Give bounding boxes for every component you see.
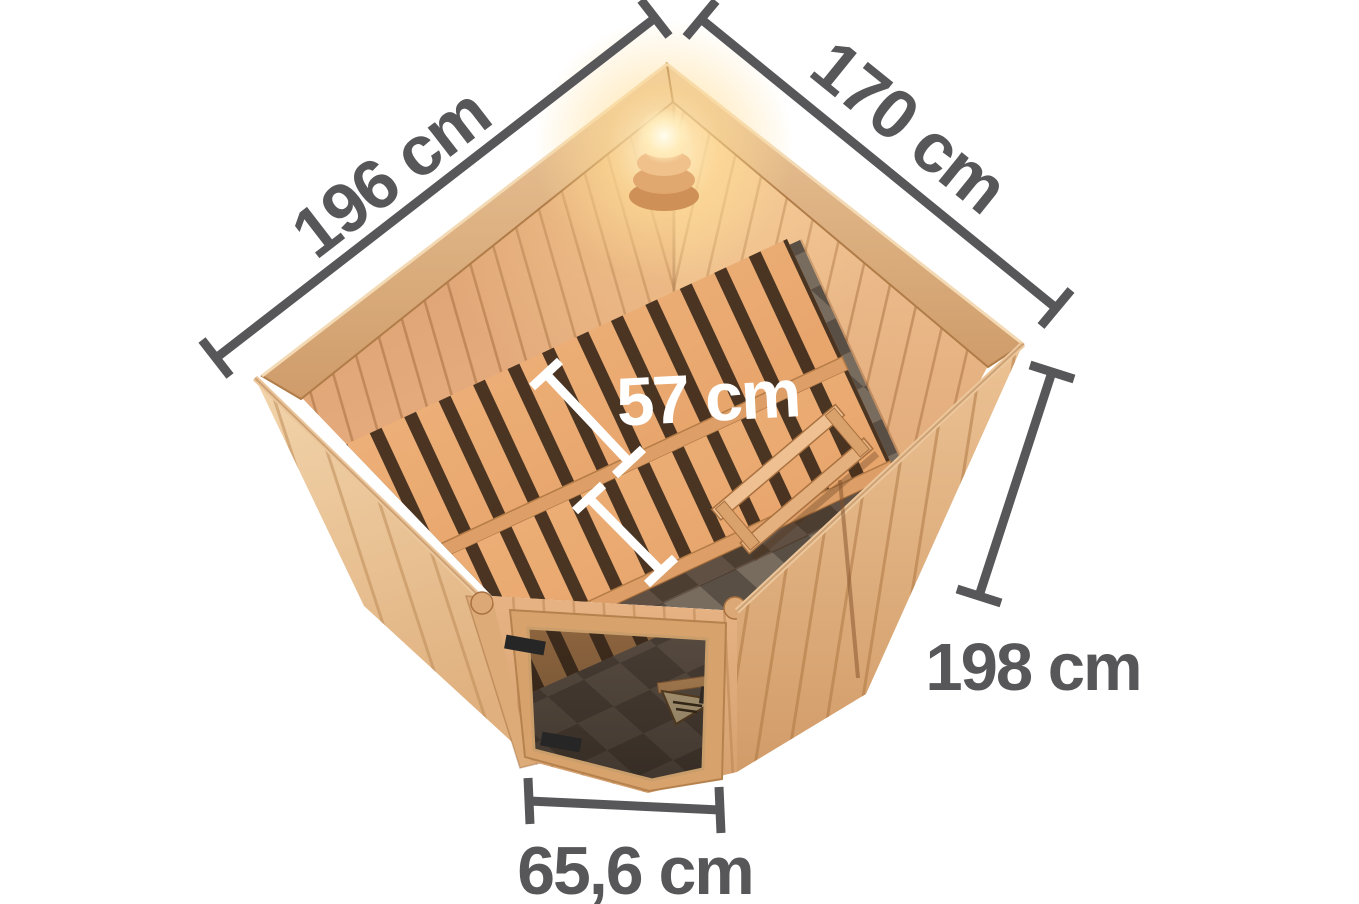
- dimension-label-bench-depth: 57 cm: [615, 355, 802, 440]
- sauna-door: [492, 596, 746, 800]
- dimension-door-width: 65,6 cm: [517, 778, 753, 904]
- dimension-label-door-width: 65,6 cm: [517, 833, 753, 904]
- dimension-label-wall-height: 198 cm: [925, 630, 1140, 705]
- product-diagram-page: 196 cm 170 cm 198 cm 65,6 cm 57 cm: [0, 0, 1359, 904]
- corner-post-knob-left: [471, 592, 493, 614]
- sauna-dimension-diagram: 196 cm 170 cm 198 cm 65,6 cm 57 cm: [0, 0, 1359, 904]
- lamp-bulb-glow: [636, 108, 692, 164]
